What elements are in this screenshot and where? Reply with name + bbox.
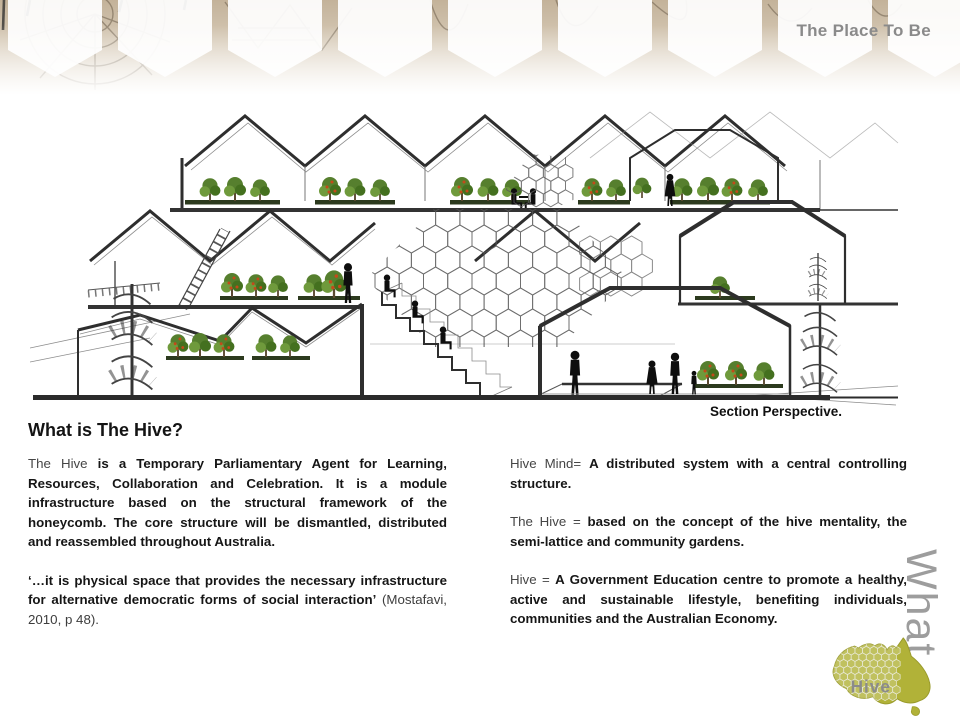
paragraph-quote: ‘…it is physical space that provides the… (28, 571, 447, 630)
planters-top (185, 177, 770, 205)
paragraph-the-hive: The Hive = based on the concept of the h… (510, 512, 907, 551)
section-perspective-drawing (30, 98, 900, 410)
paragraph-definition: The Hive is a Temporary Parliamentary Ag… (28, 454, 447, 552)
person-woman (646, 361, 657, 395)
planters-bottom-left (166, 333, 310, 360)
drawing-caption: Section Perspective. (710, 404, 842, 419)
brand-label: The Place To Be (796, 21, 931, 41)
paragraph-hive-mind: Hive Mind= A distributed system with a c… (510, 454, 907, 493)
hive-text: A Government Education centre to promote… (510, 572, 907, 626)
lead-hive-mind: Hive Mind= (510, 456, 589, 471)
lead-the-hive-eq: The Hive = (510, 514, 587, 529)
person-child (691, 371, 696, 395)
honeycomb-wall-center (363, 204, 642, 358)
tasmania-silhouette (911, 707, 919, 716)
hex-room-top-right (630, 130, 820, 210)
lead-hive-eq: Hive = (510, 572, 555, 587)
spiral-stair-left (112, 284, 153, 395)
perspective-guides (30, 314, 898, 405)
slide: The Place To Be (0, 0, 960, 720)
lead-the-hive: The Hive (28, 456, 98, 471)
planters-mid (220, 270, 360, 300)
roof-tier-top (182, 112, 898, 210)
spiral-stair-right (803, 304, 837, 397)
australia-hive-map: Hive (818, 636, 954, 720)
right-column: Hive Mind= A distributed system with a c… (510, 454, 907, 648)
center-platform (535, 351, 682, 397)
paragraph-hive: Hive = A Government Education centre to … (510, 570, 907, 629)
stepped-seating (382, 275, 512, 396)
banner-hexagon-sketch (0, 0, 960, 100)
map-label: Hive (851, 677, 891, 697)
railing-mid-left (88, 283, 160, 294)
page-title: What is The Hive? (28, 420, 183, 441)
left-column: The Hive is a Temporary Parliamentary Ag… (28, 454, 447, 648)
